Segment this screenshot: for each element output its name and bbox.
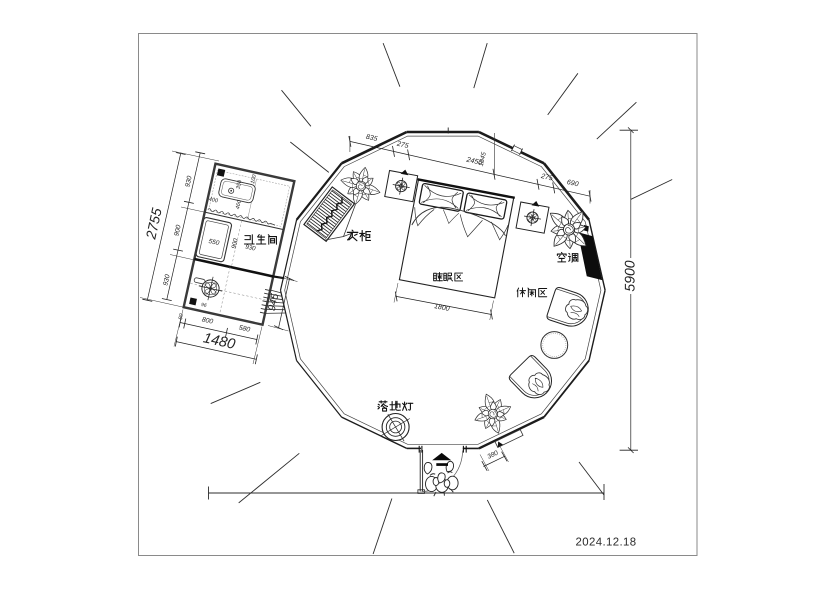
svg-text:5900: 5900	[622, 260, 638, 291]
svg-text:2024.12.18: 2024.12.18	[576, 536, 637, 548]
